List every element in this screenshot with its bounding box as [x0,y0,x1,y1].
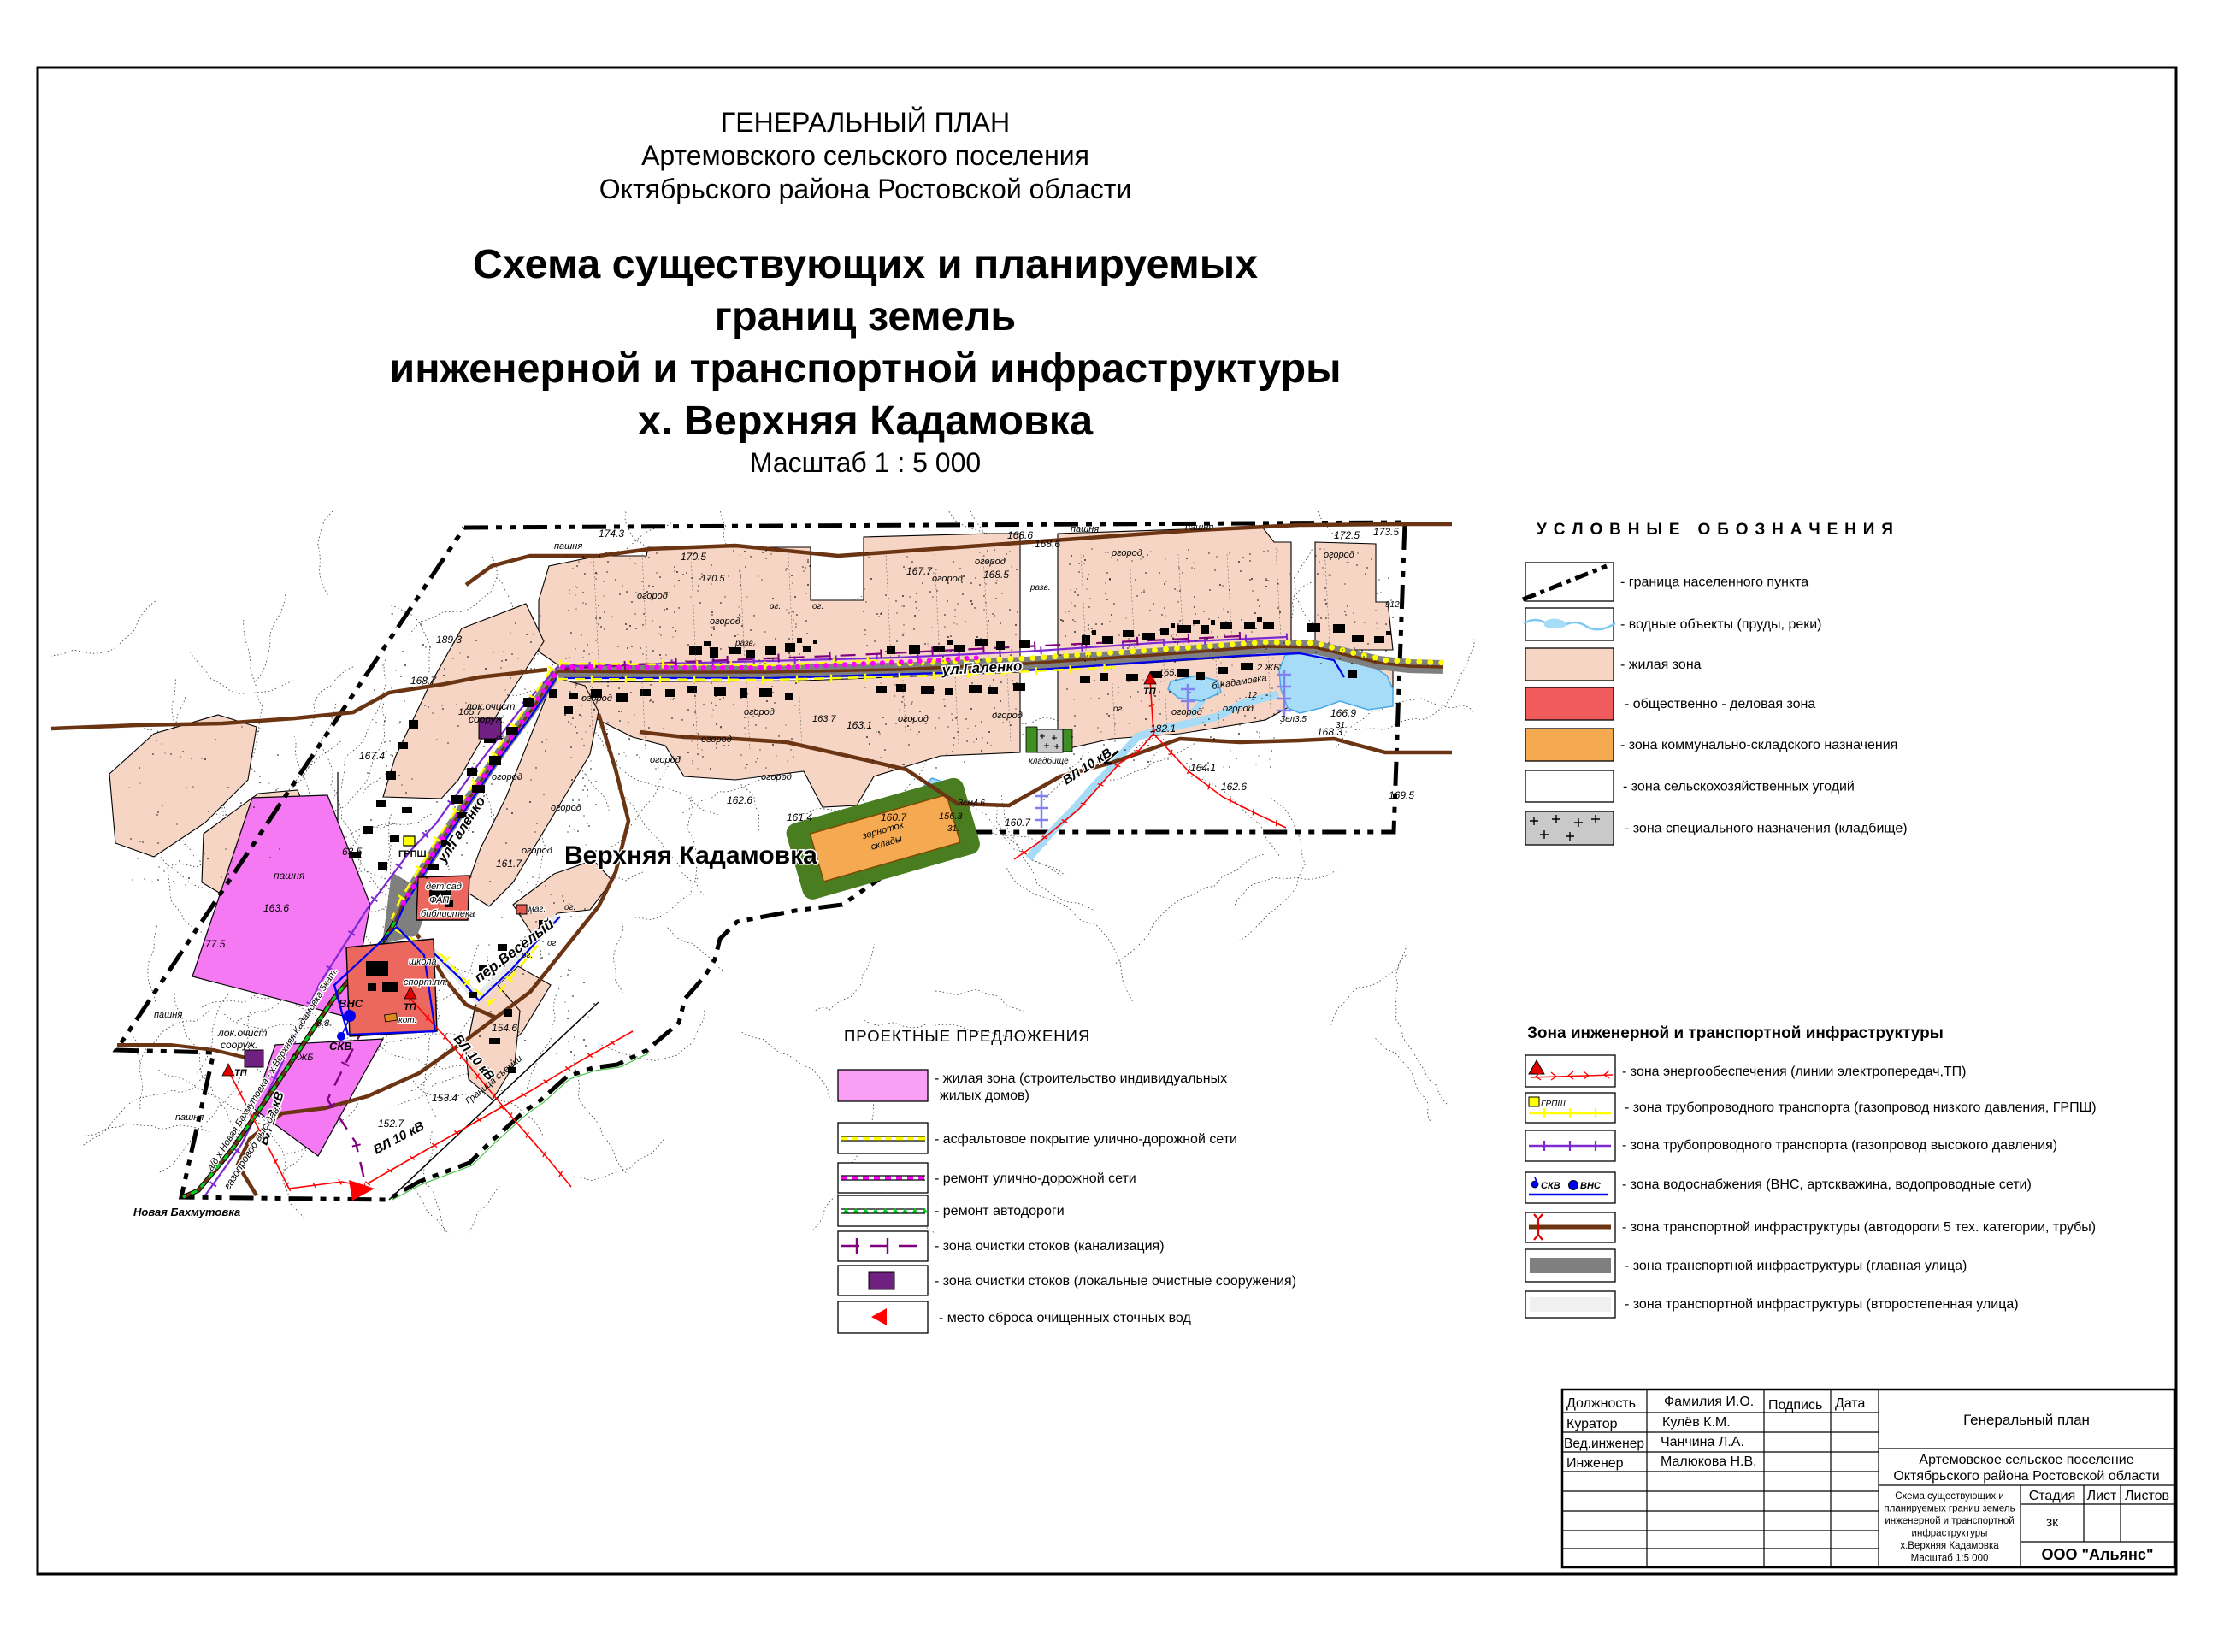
svg-text:164.1: 164.1 [1190,762,1216,774]
svg-text:Чанчина Л.А.: Чанчина Л.А. [1661,1435,1744,1449]
svg-text:162.6: 162.6 [727,794,752,806]
svg-text:кот.: кот. [398,1016,416,1025]
svg-text:лок.очист: лок.очист [217,1027,267,1039]
svg-text:168.6: 168.6 [1035,538,1060,550]
svg-text:163.7: 163.7 [812,714,836,724]
svg-text:Зсм4.6: Зсм4.6 [958,799,985,808]
svg-text:160.7: 160.7 [881,811,907,823]
svg-text:168.3: 168.3 [1317,726,1342,738]
svg-text:167.7: 167.7 [906,565,933,577]
svg-text:Артемовское сельское поселение: Артемовское сельское поселение [1919,1453,2133,1467]
svg-text:165.1: 165.1 [1159,668,1183,678]
svg-text:- место сброса очищенных сточ: - место сброса очищенных сточных вод [939,1311,1191,1325]
svg-text:2 ЖБ: 2 ЖБ [1256,663,1279,673]
svg-text:огород: огород [898,714,929,724]
svg-text:огород: огород [1223,704,1254,714]
svg-text:ГЕНЕРАЛЬНЫЙ ПЛАН: ГЕНЕРАЛЬНЫЙ ПЛАН [721,107,1010,138]
svg-text:165.7: 165.7 [458,707,482,717]
svg-text:кладбище: кладбище [1029,756,1069,766]
svg-text:- зона очистки стоков (канализ: - зона очистки стоков (канализация) [935,1239,1165,1254]
svg-text:167.4: 167.4 [359,750,385,762]
svg-text:153.4: 153.4 [432,1092,457,1104]
svg-text:ПРОЕКТНЫЕ ПРЕДЛОЖЕНИЯ: ПРОЕКТНЫЕ ПРЕДЛОЖЕНИЯ [844,1027,1090,1045]
svg-text:Октябрьского района Ростовско: Октябрьского района Ростовской области [1893,1469,2159,1484]
svg-text:огород: огород [761,772,792,782]
svg-text:- зона трубопроводного транспо: - зона трубопроводного транспорта (газоп… [1622,1138,2057,1153]
svg-text:ог.: ог. [812,602,823,611]
svg-text:- водные объекты (пруды, реки): - водные объекты (пруды, реки) [1620,617,1822,632]
svg-text:пашня: пашня [1185,522,1213,533]
svg-text:170.5: 170.5 [701,574,725,584]
svg-text:зк: зк [2046,1515,2059,1530]
svg-text:огород: огород [1171,707,1202,717]
svg-text:Подпись: Подпись [1768,1398,1822,1413]
svg-text:170.5: 170.5 [681,551,706,563]
svg-text:- зона транспортной инфраструк: - зона транспортной инфраструктуры (втор… [1625,1297,2019,1312]
svg-text:174.3: 174.3 [599,528,624,540]
svg-text:огород: огород [1112,548,1142,558]
svg-text:пашня: пашня [554,541,582,552]
svg-text:огород: огород [581,693,612,704]
svg-text:ог.: ог. [1113,705,1124,714]
svg-text:пашня: пашня [154,1010,182,1020]
svg-text:Схема существующих и планируем: Схема существующих и планируемых [473,241,1258,287]
svg-text:189.3: 189.3 [436,634,462,646]
svg-text:огород: огород [522,846,552,856]
svg-text:169.5: 169.5 [1389,789,1414,801]
svg-text:160.7: 160.7 [1005,817,1031,829]
svg-text:библиотека: библиотека [421,909,475,919]
svg-text:- зона специального назначения: - зона специального назначения (кладбище… [1625,822,1908,836]
svg-text:154.6: 154.6 [492,1022,517,1034]
svg-text:ог.: ог. [496,734,507,743]
svg-text:Листов: Листов [2125,1489,2169,1503]
svg-text:- граница населенного пункта: - граница населенного пункта [1620,575,1808,590]
svg-text:школа: школа [409,957,437,967]
svg-text:У С Л О В Н Ы Е О Б О З Н А: У С Л О В Н Ы Е О Б О З Н А Ч Е Н И Я [1537,521,1894,539]
svg-text:Октябрьского района Ростовской: Октябрьского района Ростовской области [599,174,1132,204]
svg-text:огород: огород [710,617,740,627]
svg-text:огород: огород [551,803,581,813]
svg-text:жилых домов): жилых домов) [940,1089,1029,1103]
svg-text:огород: огород [975,557,1006,567]
svg-text:- зона транспортной инфраструк: - зона транспортной инфраструктуры (глав… [1625,1259,1967,1273]
svg-text:- жилая зона: - жилая зона [1620,658,1702,672]
svg-text:огород: огород [650,755,681,765]
svg-text:Схема существующих и: Схема существующих и [1895,1491,2004,1502]
svg-text:пашня: пашня [175,1112,204,1123]
svg-text:Верхняя Кадамовка: Верхняя Кадамовка [564,841,817,870]
svg-text:31.: 31. [947,824,959,834]
svg-text:163.1: 163.1 [847,719,872,731]
svg-text:спорт.пл.: спорт.пл. [404,977,447,988]
svg-text:Фамилия И.О.: Фамилия И.О. [1664,1395,1754,1409]
svg-text:маг.: маг. [528,905,546,914]
svg-text:168.6: 168.6 [1007,529,1033,541]
svg-text:173.5: 173.5 [1373,526,1399,538]
svg-text:х.Верхняя Кадамовка: х.Верхняя Кадамовка [1900,1541,1999,1551]
svg-text:- ремонт улично-дорожной сети: - ремонт улично-дорожной сети [935,1171,1136,1186]
svg-text:77.5: 77.5 [205,938,226,950]
svg-text:ог.: ог. [564,903,575,912]
svg-text:0 ЖБ: 0 ЖБ [291,1053,313,1063]
svg-text:огород: огород [701,735,732,745]
svg-text:Куратор: Куратор [1566,1417,1618,1431]
svg-text:- зона водоснабжения (ВНС, арт: - зона водоснабжения (ВНС, артскважина, … [1622,1177,2032,1192]
svg-text:912: 912 [1385,600,1400,610]
svg-text:ГРПШ: ГРПШ [1541,1100,1566,1109]
svg-text:6.8: 6.8 [316,1018,330,1029]
svg-text:огород: огород [492,772,522,782]
svg-text:Малюкова Н.В.: Малюкова Н.В. [1661,1454,1757,1469]
svg-text:Дата: Дата [1835,1396,1866,1411]
svg-text:- зона энергообеспечения (лини: - зона энергообеспечения (линии электроп… [1622,1065,1967,1079]
svg-text:ФАП: ФАП [429,895,449,906]
svg-text:Артемовского сельского поселен: Артемовского сельского поселения [641,140,1089,171]
svg-text:162.6: 162.6 [1221,781,1247,793]
svg-text:разв.: разв. [1029,583,1051,593]
svg-text:Генеральный план: Генеральный план [1963,1412,2090,1428]
svg-text:огород: огород [637,591,668,601]
svg-text:х. Верхняя Кадамовка: х. Верхняя Кадамовка [638,398,1094,444]
svg-text:Вед.инженер: Вед.инженер [1564,1437,1644,1451]
svg-text:161.4: 161.4 [787,811,812,823]
svg-text:дет.сад: дет.сад [426,882,462,892]
svg-text:- зона транспортной инфраструк: - зона транспортной инфраструктуры (авто… [1622,1220,2096,1235]
svg-text:168.7: 168.7 [410,675,437,687]
svg-text:63.5: 63.5 [342,846,363,858]
svg-text:161.7: 161.7 [496,858,522,870]
svg-text:- общественно - деловая зона: - общественно - деловая зона [1625,697,1815,711]
svg-text:инженерной и транспортной инфр: инженерной и транспортной инфраструктуры [389,345,1341,392]
svg-text:разв.: разв. [734,639,756,648]
svg-text:ог.: ог. [547,939,558,948]
svg-text:ВНС: ВНС [1580,1181,1602,1191]
svg-text:- зона коммунально-складского: - зона коммунально-складского назначения [1620,738,1897,752]
svg-text:Зел3.5: Зел3.5 [1280,715,1307,724]
svg-text:ООО "Альянс": ООО "Альянс" [2042,1546,2154,1563]
svg-text:Масштаб 1 : 5 000: Масштаб 1 : 5 000 [750,447,981,478]
svg-text:182.1: 182.1 [1150,723,1176,735]
svg-text:огород: огород [1324,550,1354,560]
svg-text:пашня: пашня [1071,524,1099,534]
svg-text:огород: огород [744,707,775,717]
svg-text:163.6: 163.6 [263,902,289,914]
svg-text:- зона трубопроводного транспо: - зона трубопроводного транспорта (газоп… [1625,1100,2097,1115]
svg-text:Кулёв К.М.: Кулёв К.М. [1662,1415,1731,1430]
svg-text:Стадия: Стадия [2029,1489,2076,1503]
svg-text:Новая Бахмутовка: Новая Бахмутовка [133,1206,240,1218]
svg-text:Должность: Должность [1566,1396,1636,1411]
svg-text:ВНС: ВНС [339,997,363,1010]
svg-text:- жилая зона (строительство и: - жилая зона (строительство индивидуальн… [935,1071,1227,1086]
svg-text:сооруж.: сооруж. [221,1039,257,1051]
svg-text:Масштаб 1:5 000: Масштаб 1:5 000 [1911,1554,1989,1564]
svg-text:огород: огород [932,574,963,584]
svg-text:границ земель: границ земель [715,293,1016,339]
svg-text:ТП: ТП [1143,687,1157,697]
svg-text:152.7: 152.7 [378,1118,404,1130]
svg-text:- ремонт автодороги: - ремонт автодороги [935,1204,1065,1218]
svg-text:планируемых границ земель: планируемых границ земель [1884,1504,2015,1514]
svg-text:инфраструктуры: инфраструктуры [1912,1529,1988,1539]
svg-text:Лист: Лист [2087,1489,2117,1503]
svg-text:- асфальтовое покрытие улично-: - асфальтовое покрытие улично-дорожной с… [935,1132,1237,1147]
svg-text:ГРПШ: ГРПШ [398,849,427,859]
svg-text:СКВ: СКВ [1541,1181,1560,1191]
svg-text:166.9: 166.9 [1330,707,1356,719]
svg-text:Зона инженерной и транспортной: Зона инженерной и транспортной инфрастру… [1527,1024,1944,1042]
svg-text:инженерной и транспортной: инженерной и транспортной [1885,1516,2014,1526]
svg-text:- зона очистки стоков (локальн: - зона очистки стоков (локальные очистны… [935,1274,1296,1289]
svg-text:ог.: ог. [522,951,533,960]
svg-text:ТП: ТП [234,1068,248,1078]
svg-text:- зона сельскохозяйственных уг: - зона сельскохозяйственных угодий [1623,780,1855,794]
svg-text:пашня: пашня [274,870,305,882]
svg-text:СКВ: СКВ [329,1040,352,1053]
svg-text:.12: .12 [1245,691,1257,700]
svg-text:огород: огород [992,711,1023,721]
svg-text:ТП: ТП [404,1002,417,1012]
svg-text:ог.: ог. [770,602,781,611]
svg-text:168.5: 168.5 [983,569,1009,581]
svg-text:172.5: 172.5 [1334,529,1360,541]
svg-text:Инженер: Инженер [1566,1456,1624,1471]
svg-text:156.3: 156.3 [939,811,963,822]
